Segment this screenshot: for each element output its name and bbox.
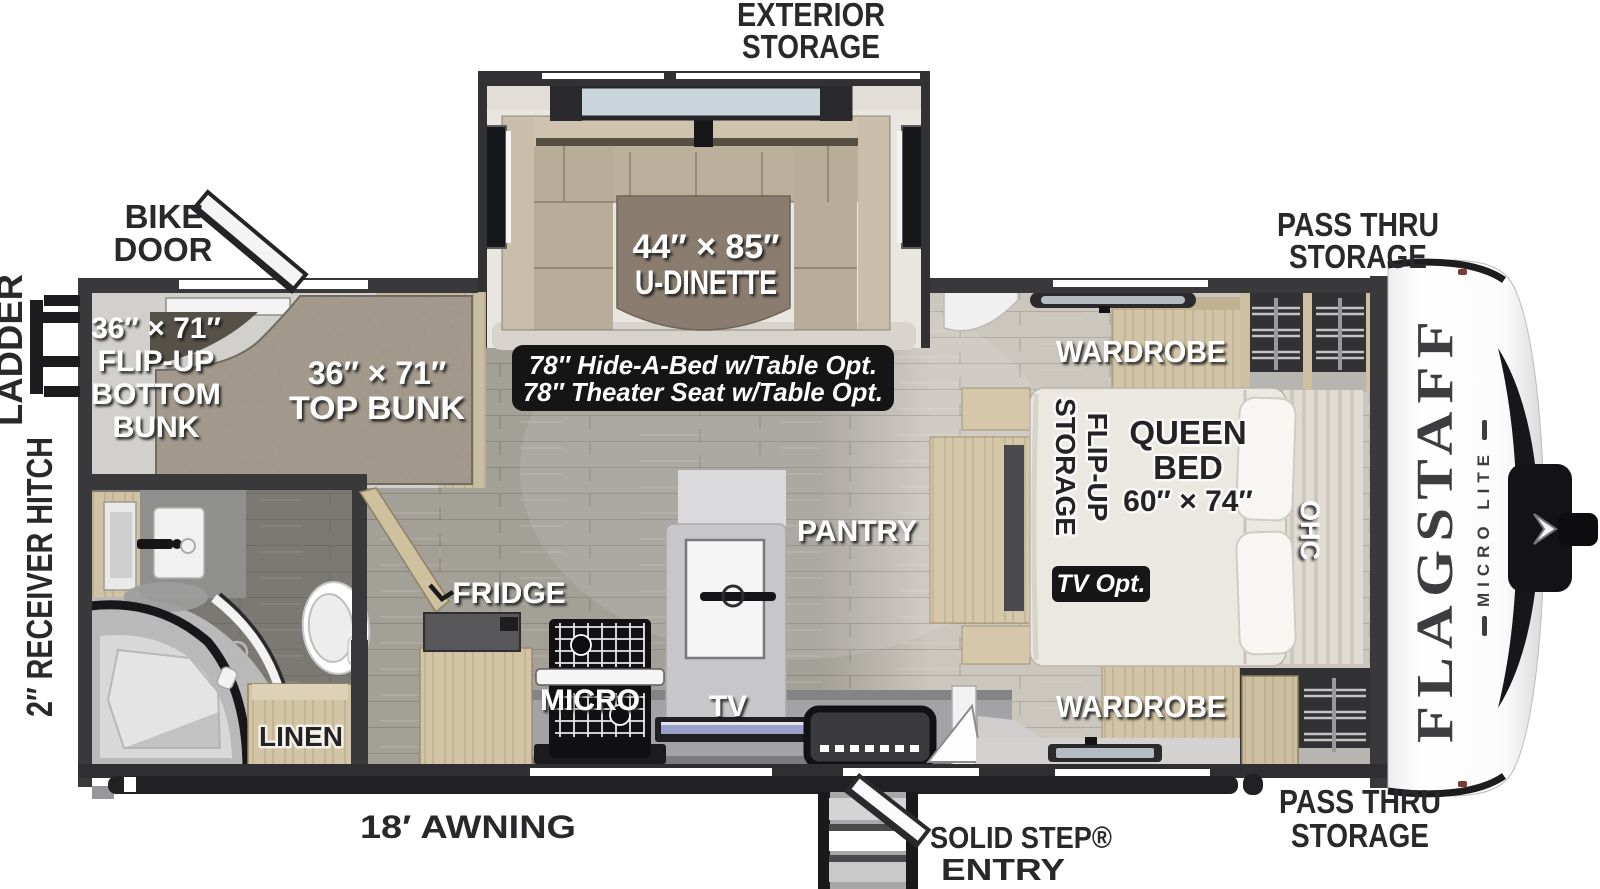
svg-text:DOOR: DOOR (114, 231, 213, 268)
svg-text:WARDROBE: WARDROBE (1056, 334, 1226, 369)
svg-text:WARDROBE: WARDROBE (1056, 689, 1226, 724)
svg-text:2″ RECEIVER HITCH: 2″ RECEIVER HITCH (19, 437, 60, 717)
svg-text:QUEEN: QUEEN (1129, 414, 1246, 451)
svg-text:FLAGSTAFF: FLAGSTAFF (1407, 313, 1464, 743)
svg-text:BOTTOM: BOTTOM (91, 378, 220, 411)
svg-text:LADDER: LADDER (0, 274, 30, 426)
svg-text:TV Opt.: TV Opt. (1057, 570, 1146, 598)
svg-text:MICRO: MICRO (540, 684, 640, 717)
svg-text:PASS THRU: PASS THRU (1279, 783, 1441, 820)
svg-text:MICRO LITE: MICRO LITE (1474, 449, 1493, 607)
svg-text:FLIP-UP: FLIP-UP (98, 345, 215, 378)
svg-text:BUNK: BUNK (113, 411, 200, 444)
svg-text:BED: BED (1153, 449, 1223, 486)
svg-text:ENTRY: ENTRY (941, 852, 1065, 887)
svg-text:STORAGE: STORAGE (1050, 398, 1081, 536)
svg-text:FRIDGE: FRIDGE (452, 577, 565, 610)
svg-text:LINEN: LINEN (259, 721, 343, 752)
svg-text:STORAGE: STORAGE (1289, 238, 1427, 275)
svg-text:SOLID STEP®: SOLID STEP® (930, 820, 1112, 855)
svg-text:36″ × 71″: 36″ × 71″ (91, 312, 221, 345)
svg-text:STORAGE: STORAGE (742, 28, 880, 65)
svg-text:U-DINETTE: U-DINETTE (635, 264, 777, 302)
svg-text:TV: TV (709, 690, 747, 723)
svg-text:60″ × 74″: 60″ × 74″ (1123, 485, 1253, 518)
svg-text:78″ Hide-A-Bed w/Table Opt.: 78″ Hide-A-Bed w/Table Opt. (529, 350, 877, 380)
svg-text:FLIP-UP: FLIP-UP (1082, 413, 1113, 522)
svg-text:PANTRY: PANTRY (797, 515, 917, 548)
svg-text:44″ × 85″: 44″ × 85″ (633, 228, 780, 266)
svg-text:78″ Theater Seat w/Table Opt.: 78″ Theater Seat w/Table Opt. (523, 377, 883, 407)
svg-text:36″ × 71″: 36″ × 71″ (308, 355, 446, 391)
svg-text:18′ AWNING: 18′ AWNING (360, 809, 576, 845)
svg-text:TOP BUNK: TOP BUNK (289, 390, 465, 426)
svg-text:OHC: OHC (1295, 500, 1325, 560)
svg-text:STORAGE: STORAGE (1291, 817, 1429, 854)
svg-text:BIKE: BIKE (125, 198, 204, 235)
